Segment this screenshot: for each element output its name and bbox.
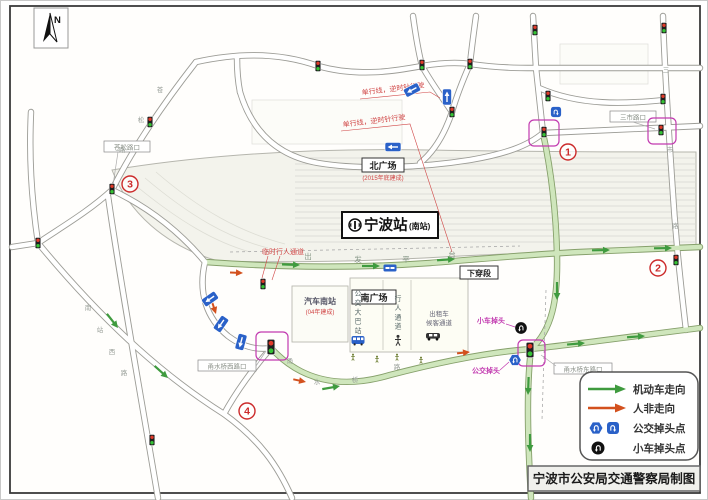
road-name-char: 南 [85,303,92,312]
bus-uturn-point-icon [551,107,561,117]
traffic-light-icon [315,61,321,72]
svg-text:公交掉头: 公交掉头 [472,366,500,375]
channel-label-char: 通 [395,312,402,321]
traffic-light-icon [449,107,455,118]
traffic-light-icon [35,238,41,249]
channel-label-char: 人 [395,304,402,312]
svg-text:机动车走向: 机动车走向 [633,383,686,396]
circled-number-3: 3 [122,176,138,192]
svg-text:小车掉头: 小车掉头 [476,316,505,325]
traffic-light-icon [467,59,473,70]
traffic-light-icon [147,117,153,128]
circled-number-1: 1 [560,144,576,160]
departure-platform-char: 发 [354,254,362,264]
taxi-line1: 出租车 [429,309,449,318]
road-name-char: 西 [109,348,116,356]
svg-text:临时行人通道: 临时行人通道 [262,247,304,256]
station-name: 宁波站 [364,216,408,234]
traffic-light-icon [260,279,266,290]
departure-platform-char: 平 [402,255,410,264]
road-name-char: 甬 [287,356,294,365]
traffic-light-icon [541,127,547,138]
taxi-line2: 候客通道 [426,318,453,327]
railway-logo-icon [349,219,361,231]
svg-text:甬水桥西路口: 甬水桥西路口 [208,362,247,371]
direction-sign [443,89,452,105]
traffic-light-icon [267,339,275,354]
station-name-box: 宁波站 (南站) [342,212,438,238]
underpass-text: 下穿段 [467,268,491,278]
channel-label-char: 大 [355,307,362,316]
north-square-text: 北广场 [369,160,396,171]
bus-lane-sign [385,143,401,152]
traffic-light-icon [109,184,115,195]
road-name-char: 松 [138,115,145,124]
platform-road-sign [384,265,397,272]
credit-bar: 宁波市公安局交通警察局制图 [528,466,700,491]
road-name-char: 路 [121,368,128,377]
traffic-light-icon [661,23,667,34]
north-square-label: 北广场 (2015年底建成) [362,158,404,182]
car-uturn-icon [592,442,605,455]
circled-number-4: 4 [239,403,255,419]
svg-text:公交掉头点: 公交掉头点 [633,422,686,435]
channels-block [350,278,468,352]
svg-text:1: 1 [565,147,571,159]
compass: N [34,8,68,48]
traffic-light-icon [526,342,534,357]
road-name-char: 苍 [157,85,164,94]
channel-label-char: 交 [355,298,362,307]
circled-number-2: 2 [650,260,666,276]
traffic-light-icon [660,94,666,105]
traffic-light-icon [673,255,679,266]
traffic-light-icon [545,91,551,102]
north-square-note: (2015年底建成) [362,174,403,182]
road-name-char: 路 [119,145,126,154]
svg-text:小车掉头点: 小车掉头点 [632,442,686,455]
traffic-light-icon [419,60,425,71]
svg-text:三市路口: 三市路口 [620,113,646,122]
legend: 机动车走向 人非走向 公交掉头点 小车掉头点 [580,372,698,460]
traffic-light-icon [658,125,664,136]
departure-platform-char: 出 [304,251,312,261]
traffic-map-page: 宁波站 (南站) 北广场 (2015年底建成) 南广场 下穿段 汽车南站 (04… [0,0,708,500]
departure-platform-char: 台 [448,249,456,259]
road-name-char: 路 [672,221,679,230]
compass-n: N [54,15,61,26]
traffic-light-icon [149,435,155,446]
road-name-char: 路 [394,362,401,371]
channel-label-char: 行 [395,294,402,303]
svg-text:4: 4 [244,406,250,418]
traffic-light-icon [532,25,538,36]
channel-label-char: 站 [355,326,362,335]
coach-station-text: 汽车南站 [304,296,336,306]
svg-text:2: 2 [655,263,661,275]
station-name-suffix: (南站) [409,221,431,231]
channel-label-char: 巴 [355,318,362,326]
underpass-label: 下穿段 [460,266,498,279]
road-name-char: 水 [314,377,321,386]
road-name-char: 市 [667,145,674,154]
channel-label-char: 公 [355,290,362,298]
svg-text:3: 3 [127,179,133,191]
car-uturn-point-icon [515,322,527,334]
coach-station-note: (04年建成) [306,308,335,316]
bus-uturn-square-icon [607,422,619,434]
map-canvas: 宁波站 (南站) 北广场 (2015年底建成) 南广场 下穿段 汽车南站 (04… [0,0,708,500]
credit-text: 宁波市公安局交通警察局制图 [533,471,696,486]
road-name-char: 三 [663,66,670,74]
road-name-char: 桥 [352,375,359,384]
svg-text:人非走向: 人非走向 [633,402,675,415]
channel-label-char: 道 [395,322,402,331]
road-name-char: 站 [97,325,104,334]
south-square-text: 南广场 [360,292,387,303]
